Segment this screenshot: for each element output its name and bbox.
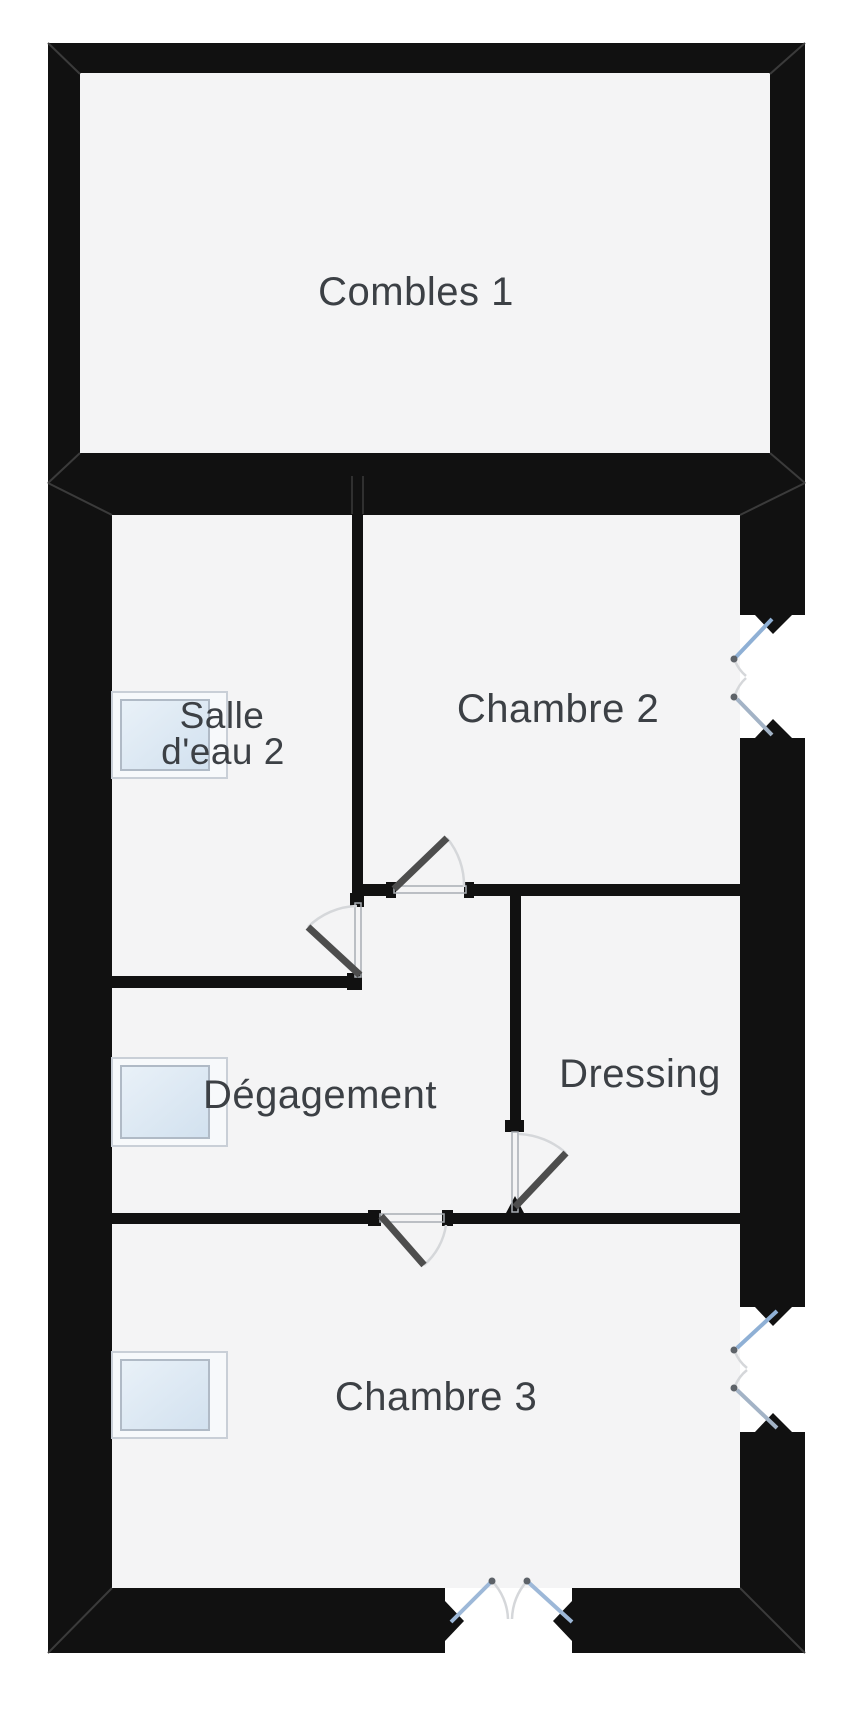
wall-below-chambre2-right — [468, 884, 740, 896]
room-combles-1-floor — [80, 73, 770, 453]
window-pane — [121, 1066, 209, 1138]
casement-window-chambre-3 — [731, 1307, 806, 1432]
wall-degagement-dressing — [510, 896, 521, 1124]
floor-plan-page: Combles 1 Salle d'eau 2 Chambre 2 Dégage… — [0, 0, 852, 1712]
door-opening — [445, 1588, 572, 1653]
hinge-dot — [731, 694, 738, 701]
hinge-dot — [524, 1578, 531, 1585]
room-label-combles-1: Combles 1 — [318, 270, 514, 314]
hinge-dot — [489, 1578, 496, 1585]
wall-above-chambre3-right — [448, 1213, 740, 1224]
wall-above-chambre3-left — [112, 1213, 370, 1224]
hinge-dot — [731, 1347, 738, 1354]
floor-plan-svg: Combles 1 Salle d'eau 2 Chambre 2 Dégage… — [0, 0, 852, 1712]
roof-window-chambre-3 — [112, 1352, 227, 1438]
room-label-chambre-2: Chambre 2 — [457, 687, 659, 731]
wall-jamb — [505, 1120, 524, 1132]
room-label-degagement: Dégagement — [203, 1073, 437, 1117]
hinge-dot — [731, 1385, 738, 1392]
wall-below-salledeau — [112, 976, 350, 988]
hinge-dot — [731, 656, 738, 663]
wall-salledeau-chambre2 — [352, 515, 363, 895]
window-pane — [121, 1360, 209, 1430]
room-label-salle-deau-2-line1: Salle — [180, 695, 265, 736]
room-label-salle-deau-2-line2: d'eau 2 — [161, 731, 285, 772]
window-opening — [740, 1307, 805, 1432]
room-label-dressing: Dressing — [559, 1052, 721, 1096]
entry-door-double — [445, 1578, 572, 1654]
room-label-chambre-3: Chambre 3 — [335, 1375, 537, 1419]
casement-window-chambre-2 — [731, 615, 806, 738]
